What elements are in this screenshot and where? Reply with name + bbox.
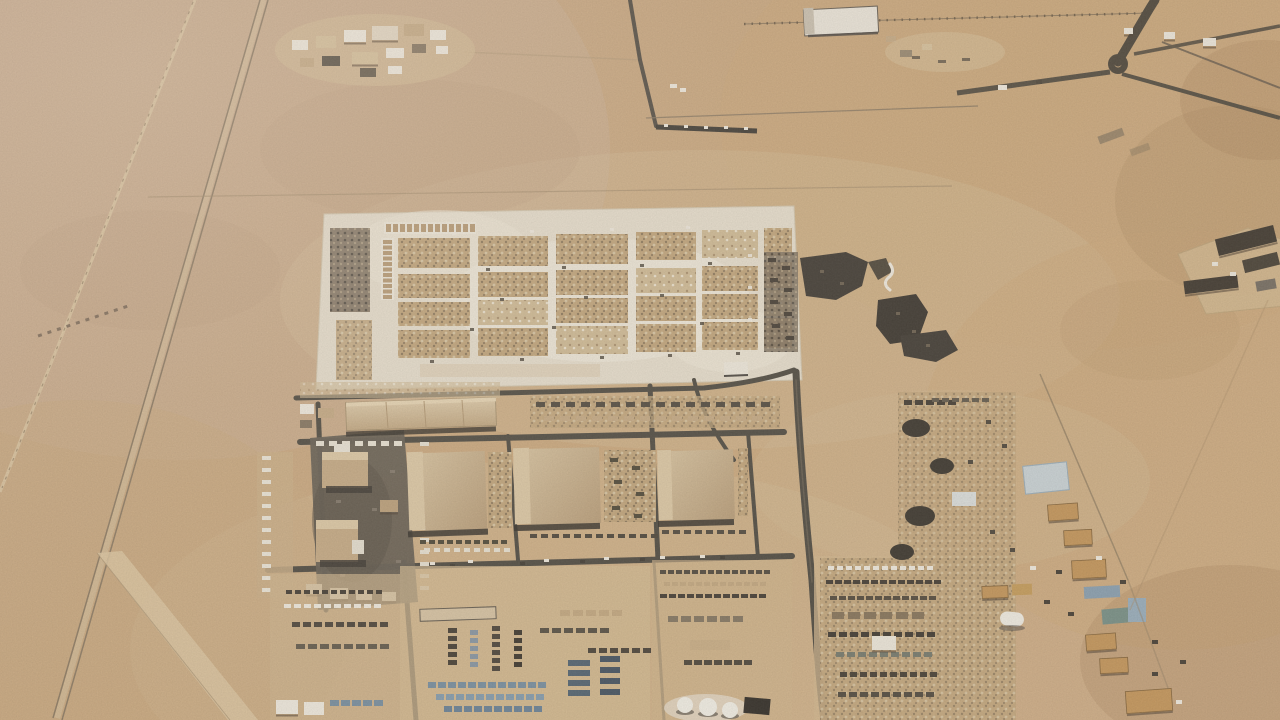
aerial-photograph-desert-military-base [0, 0, 1280, 720]
screenshot-root: Aerial photograph of a desert military b… [0, 0, 1280, 720]
atmospheric-haze [0, 0, 1280, 720]
